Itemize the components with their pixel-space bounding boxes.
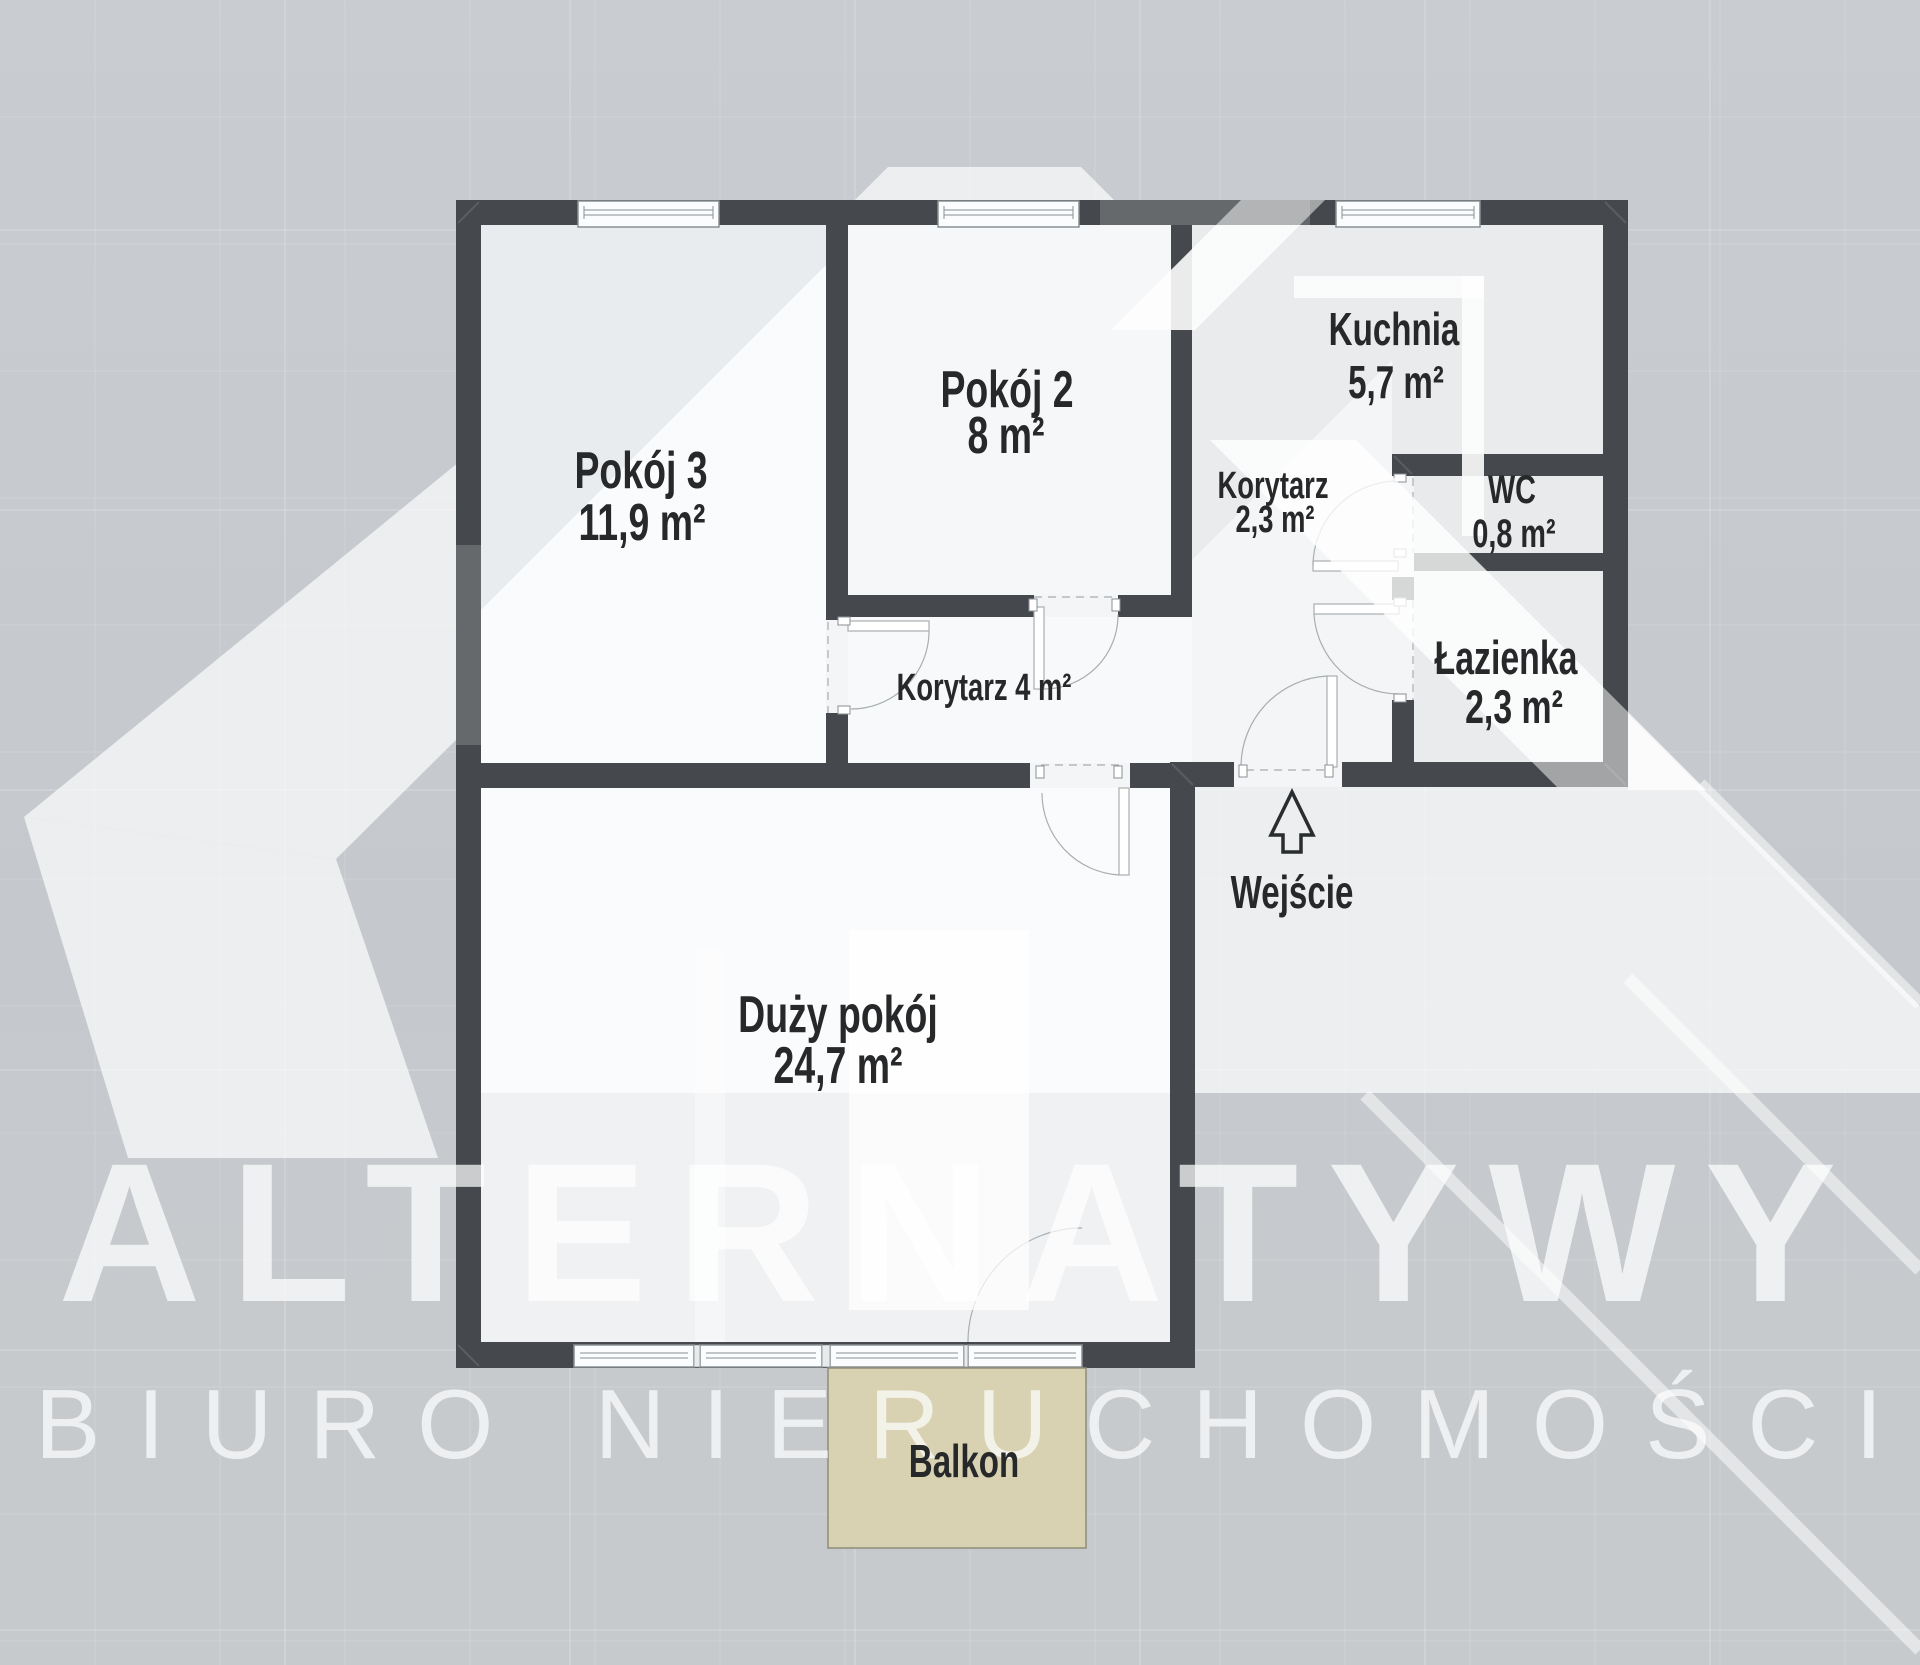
svg-text:Balkon: Balkon [909, 1437, 1019, 1487]
svg-text:Wejście: Wejście [1231, 868, 1354, 918]
svg-text:Łazienka: Łazienka [1435, 632, 1579, 685]
svg-text:WC: WC [1488, 467, 1536, 512]
svg-text:24,7 m²: 24,7 m² [774, 1036, 903, 1095]
svg-text:Pokój 3: Pokój 3 [574, 441, 707, 500]
svg-text:8 m²: 8 m² [968, 406, 1045, 465]
svg-text:2,3 m²: 2,3 m² [1235, 499, 1314, 541]
svg-text:2,3 m²: 2,3 m² [1465, 681, 1563, 734]
svg-text:ALTERNATYWY: ALTERNATYWY [58, 1122, 1865, 1343]
svg-text:Duży pokój: Duży pokój [738, 985, 938, 1044]
svg-text:0,8 m²: 0,8 m² [1472, 511, 1555, 556]
svg-text:Korytarz 4 m²: Korytarz 4 m² [897, 667, 1072, 709]
svg-text:11,9 m²: 11,9 m² [579, 493, 706, 552]
svg-text:5,7 m²: 5,7 m² [1348, 358, 1444, 408]
svg-text:Kuchnia: Kuchnia [1329, 305, 1460, 355]
